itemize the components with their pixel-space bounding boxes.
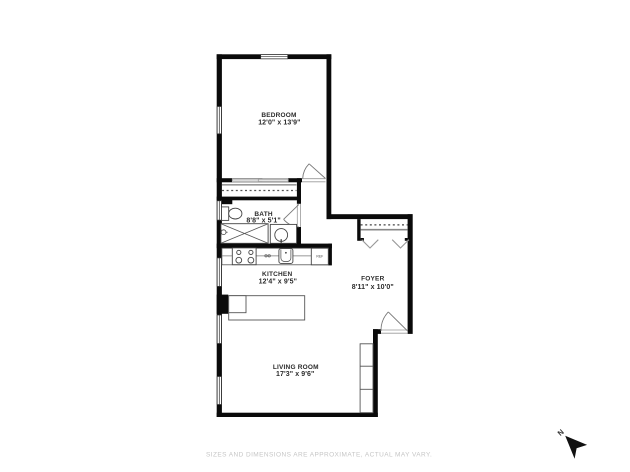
svg-text:FOYER: FOYER [361,276,384,283]
svg-text:BEDROOM: BEDROOM [261,112,296,119]
svg-text:SIZES AND DIMENSIONS ARE APPRO: SIZES AND DIMENSIONS ARE APPROXIMATE, AC… [206,451,432,458]
svg-text:REF: REF [316,255,323,259]
svg-text:12'0" x 13'9": 12'0" x 13'9" [258,119,300,126]
svg-text:KITCHEN: KITCHEN [262,271,292,278]
svg-text:8'11" x 10'0": 8'11" x 10'0" [352,284,394,291]
svg-text:LIVING ROOM: LIVING ROOM [273,364,319,371]
svg-text:17'3" x 9'6": 17'3" x 9'6" [276,371,314,378]
svg-text:12'4" x 9'5": 12'4" x 9'5" [259,279,297,286]
